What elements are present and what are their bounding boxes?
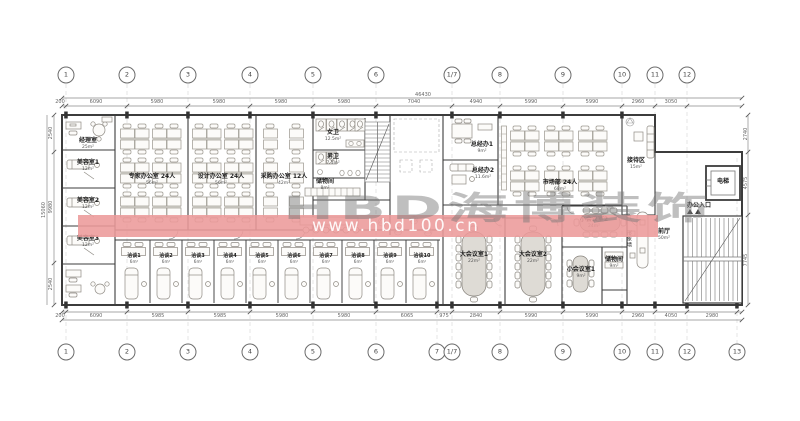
room-name: 小会议室1 <box>567 266 595 273</box>
room-name: 设计办公室 24人 <box>198 173 244 180</box>
watermark-brand: HBD海博装饰 <box>283 183 714 229</box>
room-area: 12m² <box>77 167 99 172</box>
room-label: 总经办1 9m² <box>471 142 493 154</box>
room-area: 6m² <box>223 260 236 265</box>
grid-bubble: 11 <box>647 67 664 84</box>
room-area: 6m² <box>414 260 431 265</box>
room-label: 洽谈7 6m² <box>319 254 332 264</box>
stairs-entrance <box>683 216 742 303</box>
grid-bubble: 1/7 <box>444 67 461 84</box>
room-area: 6m² <box>127 260 140 265</box>
room-label: 美容室1 12m² <box>77 160 99 172</box>
dimension-label: 2740 <box>743 128 749 141</box>
overall-dimension: 46430 <box>415 92 431 98</box>
grid-bubble: 10 <box>614 344 631 361</box>
dimension-label: 7040 <box>408 99 421 105</box>
room-area: 9m² <box>471 149 493 154</box>
dimension-label: 975 <box>439 313 449 319</box>
dimension-label: 5985 <box>152 313 165 319</box>
grid-bubble: 1 <box>58 344 75 361</box>
room-name: 男卫 <box>327 153 339 160</box>
dimension-label: 5980 <box>338 99 351 105</box>
dimension-label: 5990 <box>586 313 599 319</box>
room-name: 接待区 <box>627 157 645 164</box>
dimension-label: 9980 <box>48 201 54 214</box>
grid-bubble: 3 <box>180 67 197 84</box>
room-name: 美容室1 <box>77 159 99 166</box>
grid-bubble: 12 <box>679 344 696 361</box>
room-label: 洽谈6 6m² <box>287 254 300 264</box>
dimension-label: 200 <box>55 313 65 319</box>
grid-bubble: 9 <box>555 344 572 361</box>
room-name: 美容室2 <box>77 197 99 204</box>
consult-rooms <box>122 240 439 303</box>
dimension-label: 5980 <box>151 99 164 105</box>
grid-bubble: 8 <box>492 344 509 361</box>
dimension-label: 5980 <box>213 99 226 105</box>
grid-bubble: 6 <box>368 67 385 84</box>
room-label: 设计办公室 24人 56m² <box>198 174 244 186</box>
room-label: 经理室 25m² <box>79 138 97 150</box>
room-area: 12m² <box>77 243 99 248</box>
dimension-label: 200 <box>55 99 65 105</box>
room-name: 总经办2 <box>472 167 494 174</box>
grid-bubble: 1 <box>58 67 75 84</box>
room-name: 专家办公室 24人 <box>129 173 175 180</box>
room-label: 洽谈4 6m² <box>223 254 236 264</box>
room-label: 大会议室2 22m² <box>519 252 547 264</box>
grid-bubble: 9 <box>555 67 572 84</box>
room-area: 11.6m² <box>472 175 494 180</box>
room-area: 6m² <box>159 260 172 265</box>
room-name: 大会议室1 <box>460 251 488 258</box>
room-label: 洽谈2 6m² <box>159 254 172 264</box>
room-area: 22m² <box>519 259 547 264</box>
room-name: 前厅 <box>658 228 670 235</box>
room-area: 9m² <box>605 264 623 269</box>
dimension-label: 6065 <box>401 313 414 319</box>
room-area: 6m² <box>287 260 300 265</box>
dimension-label: 2980 <box>706 313 719 319</box>
room-name: 储物间 <box>605 256 623 263</box>
room-area: 22m² <box>460 259 488 264</box>
room-label: 前厅 50m² <box>658 229 670 241</box>
dimension-label: 4575 <box>743 177 749 190</box>
room-label: 大会议室1 22m² <box>460 252 488 264</box>
room-area: 15m² <box>627 165 645 170</box>
room-area: 56m² <box>129 181 175 186</box>
grid-bubble: 2 <box>119 67 136 84</box>
grid-bubble: 10 <box>614 67 631 84</box>
void-area <box>394 119 439 172</box>
grid-bubble: 12 <box>679 67 696 84</box>
dimension-label: 5990 <box>525 313 538 319</box>
room-area: 6m² <box>191 260 204 265</box>
grid-bubble: 4 <box>242 344 259 361</box>
dimension-label: 6090 <box>90 99 103 105</box>
dimension-label: 4050 <box>665 313 678 319</box>
floor-plan-canvas: 1 2 3 4 5 6 1/7 8 9 10 11 12 1 2 3 <box>0 0 800 421</box>
room-name: 总经办1 <box>471 141 493 148</box>
room-area: 9m² <box>567 274 595 279</box>
room-area: 12m² <box>77 205 99 210</box>
room-label: 洽谈8 6m² <box>351 254 364 264</box>
dimension-label: 4940 <box>470 99 483 105</box>
dimension-label: 2840 <box>470 313 483 319</box>
grid-bubble: 6 <box>368 344 385 361</box>
grid-bubble: 8 <box>492 67 509 84</box>
room-area: 12.5m² <box>325 137 341 142</box>
room-area: 6m² <box>255 260 268 265</box>
room-area: 7.5m² <box>326 161 339 166</box>
room-area: 6m² <box>351 260 364 265</box>
dimension-label: 5990 <box>525 99 538 105</box>
grid-bubble: 4 <box>242 67 259 84</box>
dimension-label: 7745 <box>743 254 749 267</box>
grid-bubble: 11 <box>647 344 664 361</box>
dimension-label: 5990 <box>586 99 599 105</box>
room-label: 洽谈10 6m² <box>414 254 431 264</box>
room-label: 接待区 15m² <box>627 158 645 170</box>
room-label: 洽谈9 6m² <box>383 254 396 264</box>
grid-bubble: 3 <box>180 344 197 361</box>
room-name: 经理室 <box>79 137 97 144</box>
room-label: 洽谈3 6m² <box>191 254 204 264</box>
grid-bubble: 5 <box>305 344 322 361</box>
room-name: 大会议室2 <box>519 251 547 258</box>
room-area: 25m² <box>79 145 97 150</box>
room-label: 美容室2 12m² <box>77 198 99 210</box>
dimension-label: 6090 <box>90 313 103 319</box>
room-area: 56m² <box>198 181 244 186</box>
room-label: 美容室3 12m² <box>77 236 99 248</box>
room-label: 专家办公室 24人 56m² <box>129 174 175 186</box>
grid-bubble: 5 <box>305 67 322 84</box>
dimension-label: 5980 <box>276 313 289 319</box>
room-name: 女卫 <box>327 129 339 136</box>
room-label: 男卫 7.5m² <box>326 154 339 166</box>
room-label: 洽谈1 6m² <box>127 254 140 264</box>
room-area: 6m² <box>319 260 332 265</box>
room-label: 小会议室1 9m² <box>567 267 595 279</box>
dimension-label: 5980 <box>275 99 288 105</box>
grid-bubble: 2 <box>119 344 136 361</box>
dimension-label: 5980 <box>338 313 351 319</box>
grid-bubble: 1/7 <box>444 344 461 361</box>
room-name: 采购办公室 12人 <box>261 173 307 180</box>
overall-dimension-left: 15060 <box>41 202 47 218</box>
room-area: 50m² <box>658 236 670 241</box>
room-label: 总经办2 11.6m² <box>472 168 494 180</box>
waiting-area <box>626 118 654 158</box>
room-label: 洽谈5 6m² <box>255 254 268 264</box>
dimension-label: 3050 <box>665 99 678 105</box>
room-name: 电梯 <box>717 178 729 185</box>
room-area: 6m² <box>383 260 396 265</box>
dimension-label: 2960 <box>632 313 645 319</box>
dimension-label: 2960 <box>632 99 645 105</box>
room-label: 女卫 12.5m² <box>325 130 341 142</box>
dimension-label: 2540 <box>48 278 54 291</box>
grid-bubble: 13 <box>729 344 746 361</box>
room-label: 电梯 <box>717 179 729 186</box>
stairs-middle <box>365 122 390 182</box>
room-label: 储物间 9m² <box>605 257 623 269</box>
dimension-label: 2540 <box>48 127 54 140</box>
dimension-label: 5985 <box>214 313 227 319</box>
